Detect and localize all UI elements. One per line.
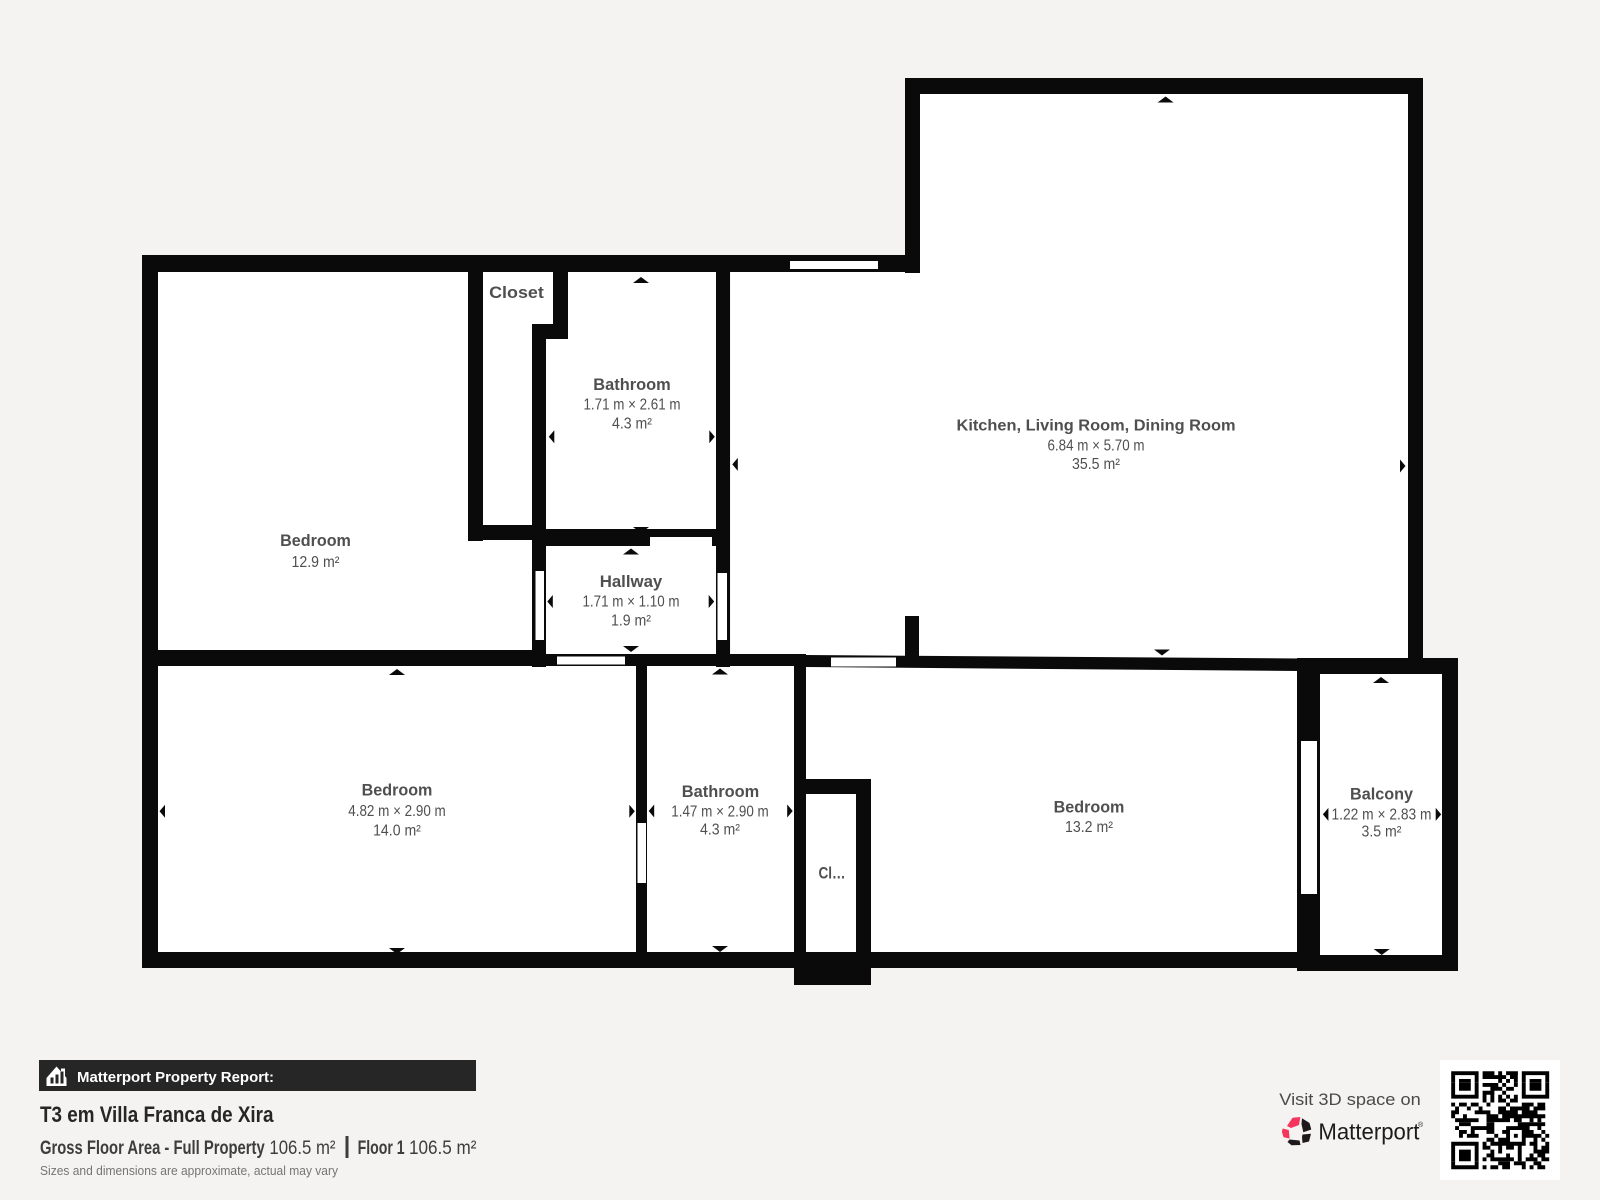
svg-text:®: ® xyxy=(1418,1121,1424,1129)
svg-text:14.0 m²: 14.0 m² xyxy=(373,823,421,840)
svg-text:106.5 m²: 106.5 m² xyxy=(269,1138,335,1159)
svg-text:Bedroom: Bedroom xyxy=(1054,798,1125,817)
svg-text:Closet: Closet xyxy=(489,283,544,302)
svg-text:Bathroom: Bathroom xyxy=(682,782,759,801)
svg-text:106.5 m²: 106.5 m² xyxy=(409,1138,477,1159)
svg-text:Matterport: Matterport xyxy=(1318,1118,1420,1144)
svg-text:1.9 m²: 1.9 m² xyxy=(611,613,651,630)
svg-text:Sizes and dimensions are appro: Sizes and dimensions are approximate, ac… xyxy=(40,1163,338,1178)
svg-text:13.2 m²: 13.2 m² xyxy=(1065,819,1113,836)
svg-text:3.5 m²: 3.5 m² xyxy=(1362,824,1402,841)
svg-text:Balcony: Balcony xyxy=(1350,785,1414,804)
svg-text:Floor 1: Floor 1 xyxy=(358,1138,405,1159)
svg-text:4.82 m × 2.90 m: 4.82 m × 2.90 m xyxy=(348,803,446,820)
svg-text:Gross Floor Area - Full Proper: Gross Floor Area - Full Property xyxy=(40,1138,265,1159)
svg-text:35.5 m²: 35.5 m² xyxy=(1072,456,1120,473)
svg-text:1.71 m × 2.61 m: 1.71 m × 2.61 m xyxy=(584,397,681,414)
svg-text:1.22 m × 2.83 m: 1.22 m × 2.83 m xyxy=(1332,807,1432,824)
svg-text:Bathroom: Bathroom xyxy=(593,375,670,394)
svg-text:12.9 m²: 12.9 m² xyxy=(292,554,340,571)
svg-text:Visit 3D space on: Visit 3D space on xyxy=(1279,1090,1421,1109)
svg-text:4.3 m²: 4.3 m² xyxy=(612,416,652,433)
svg-text:T3 em Villa Franca de Xira: T3 em Villa Franca de Xira xyxy=(40,1102,274,1127)
svg-text:4.3 m²: 4.3 m² xyxy=(700,822,740,839)
svg-text:1.47 m × 2.90 m: 1.47 m × 2.90 m xyxy=(671,804,769,821)
svg-text:Bedroom: Bedroom xyxy=(362,781,433,800)
svg-text:Bedroom: Bedroom xyxy=(280,531,351,550)
svg-text:Cl…: Cl… xyxy=(819,864,846,883)
svg-text:1.71 m × 1.10 m: 1.71 m × 1.10 m xyxy=(583,594,680,611)
svg-text:6.84 m × 5.70 m: 6.84 m × 5.70 m xyxy=(1048,437,1145,454)
svg-text:Kitchen, Living Room, Dining R: Kitchen, Living Room, Dining Room xyxy=(957,418,1236,435)
svg-text:Matterport Property Report:: Matterport Property Report: xyxy=(77,1069,274,1086)
svg-text:Hallway: Hallway xyxy=(600,572,663,591)
